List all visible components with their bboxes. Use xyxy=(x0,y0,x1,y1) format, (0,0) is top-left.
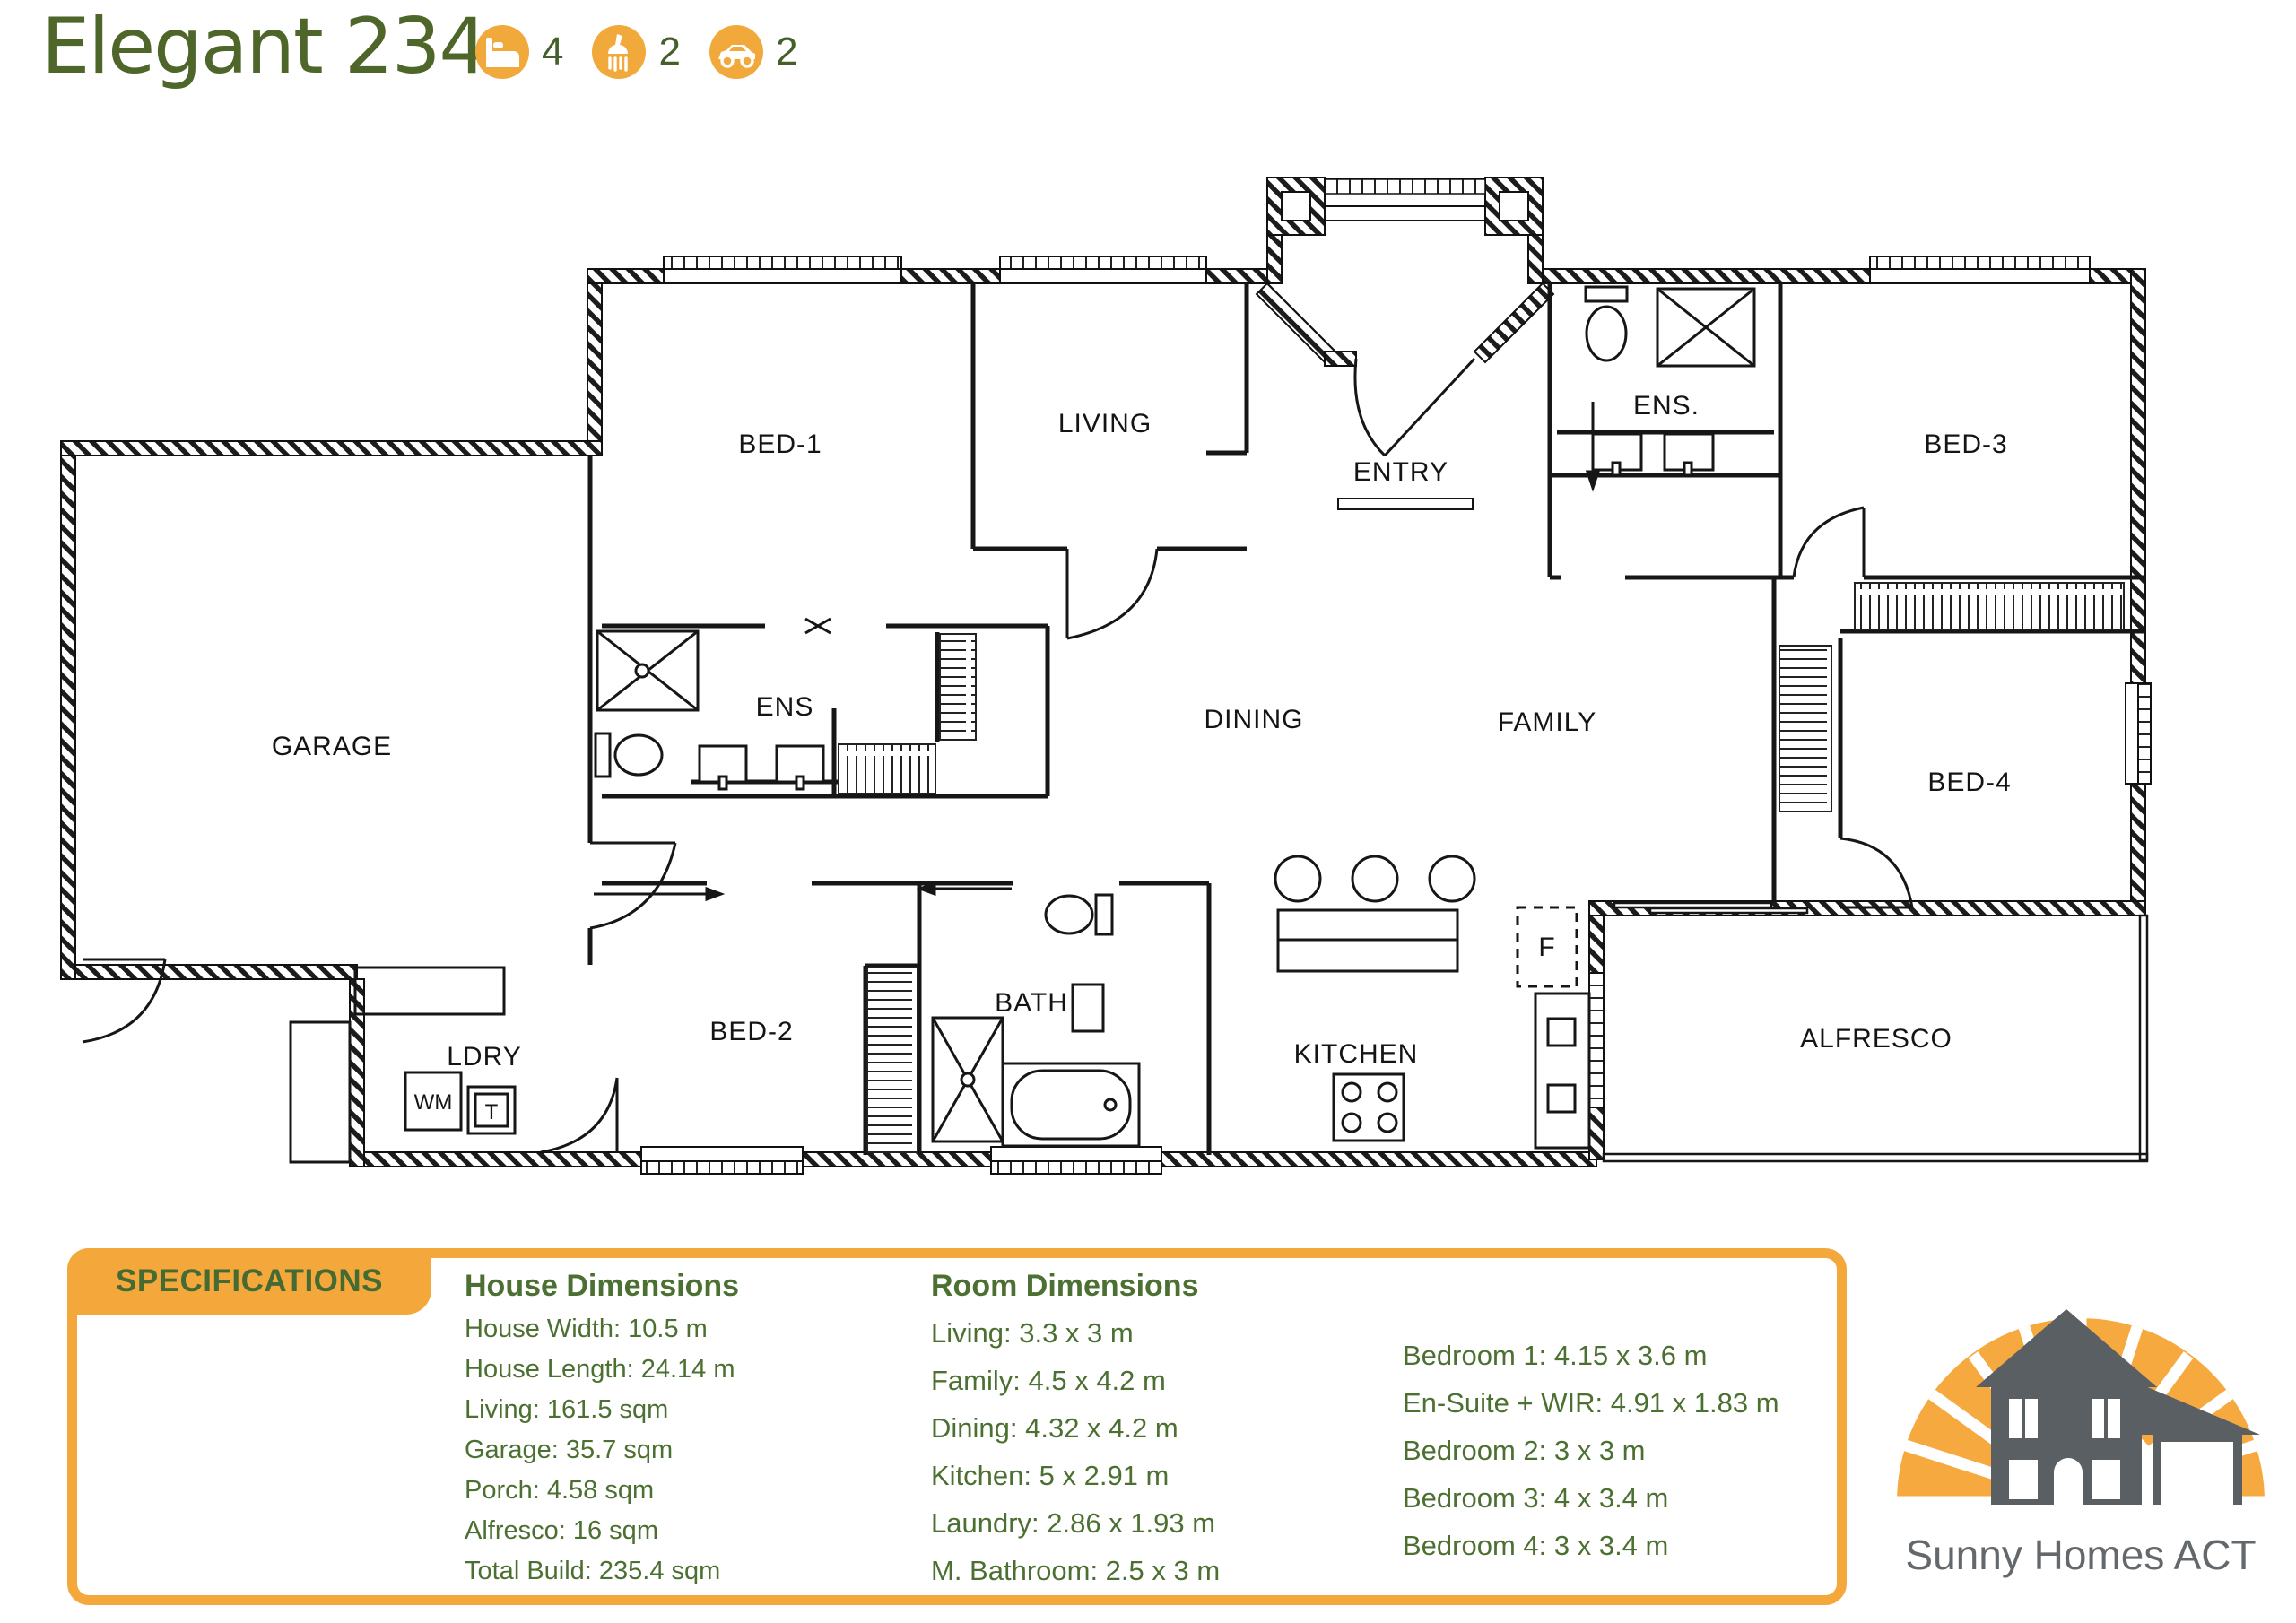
spec-line: Dining: 4.32 x 4.2 m xyxy=(931,1404,1308,1452)
bedroom-dimensions-column: Bedroom 1: 4.15 x 3.6 m En-Suite + WIR: … xyxy=(1403,1332,1923,1569)
spec-line: Total Build: 235.4 sqm xyxy=(465,1551,761,1592)
company-logo-graphic: Sunny Homes ACT xyxy=(1883,1246,2287,1609)
room-labels: GARAGE BED-1 LIVING ENTRY ENS. BED-3 ENS… xyxy=(272,391,2012,1124)
spec-line: Porch: 4.58 sqm xyxy=(465,1471,761,1511)
spec-line: Bedroom 4: 3 x 3.4 m xyxy=(1403,1522,1923,1569)
room-dimensions-header: Room Dimensions xyxy=(931,1269,1308,1304)
room-label-bed1: BED-1 xyxy=(738,430,822,459)
room-label-living: LIVING xyxy=(1058,409,1152,438)
label-tub-unit: T xyxy=(485,1100,499,1124)
room-label-ldry: LDRY xyxy=(447,1042,521,1072)
house-dimensions-column: House Dimensions House Width: 10.5 m Hou… xyxy=(465,1269,761,1592)
floor-plan: GARAGE BED-1 LIVING ENTRY ENS. BED-3 ENS… xyxy=(0,0,2296,1237)
spec-line: Bedroom 3: 4 x 3.4 m xyxy=(1403,1474,1923,1522)
room-label-family: FAMILY xyxy=(1498,707,1596,737)
room-label-bed3: BED-3 xyxy=(1924,430,2007,459)
spec-line: Family: 4.5 x 4.2 m xyxy=(931,1357,1308,1404)
room-label-entry: ENTRY xyxy=(1353,457,1448,487)
room-label-ens3: ENS. xyxy=(1633,391,1700,421)
spec-line: Bedroom 2: 3 x 3 m xyxy=(1403,1427,1923,1474)
room-label-bath: BATH xyxy=(995,988,1068,1018)
spec-line: Laundry: 2.86 x 1.93 m xyxy=(931,1499,1308,1547)
room-label-kitchen: KITCHEN xyxy=(1294,1039,1419,1069)
specifications-panel: SPECIFICATIONS House Dimensions House Wi… xyxy=(67,1248,1847,1605)
room-label-ens-master: ENS xyxy=(756,692,814,722)
label-fridge: F xyxy=(1538,933,1555,962)
spec-line: House Length: 24.14 m xyxy=(465,1350,761,1390)
spec-line: House Width: 10.5 m xyxy=(465,1309,761,1350)
company-name: Sunny Homes ACT xyxy=(1905,1532,2256,1578)
company-logo: Sunny Homes ACT xyxy=(1883,1246,2287,1609)
spec-line: Bedroom 1: 4.15 x 3.6 m xyxy=(1403,1332,1923,1379)
room-label-bed2: BED-2 xyxy=(709,1017,793,1046)
room-label-bed4: BED-4 xyxy=(1927,768,2011,797)
house-dimensions-header: House Dimensions xyxy=(465,1269,761,1304)
specifications-tab: SPECIFICATIONS xyxy=(67,1248,431,1315)
spec-line: Garage: 35.7 sqm xyxy=(465,1430,761,1471)
room-label-garage: GARAGE xyxy=(272,732,392,761)
floor-plan-svg: GARAGE BED-1 LIVING ENTRY ENS. BED-3 ENS… xyxy=(0,0,2296,1237)
room-dimensions-column: Room Dimensions Living: 3.3 x 3 m Family… xyxy=(931,1269,1308,1594)
spec-line: M. Bathroom: 2.5 x 3 m xyxy=(931,1547,1308,1594)
room-label-dining: DINING xyxy=(1205,705,1304,734)
label-washing-machine: WM xyxy=(414,1090,453,1115)
room-label-alfresco: ALFRESCO xyxy=(1800,1024,1952,1054)
spec-line: En-Suite + WIR: 4.91 x 1.83 m xyxy=(1403,1379,1923,1427)
spec-line: Alfresco: 16 sqm xyxy=(465,1511,761,1551)
spec-line: Living: 161.5 sqm xyxy=(465,1390,761,1430)
spec-line: Kitchen: 5 x 2.91 m xyxy=(931,1452,1308,1499)
spec-line: Living: 3.3 x 3 m xyxy=(931,1309,1308,1357)
specifications-tab-label: SPECIFICATIONS xyxy=(116,1263,383,1299)
